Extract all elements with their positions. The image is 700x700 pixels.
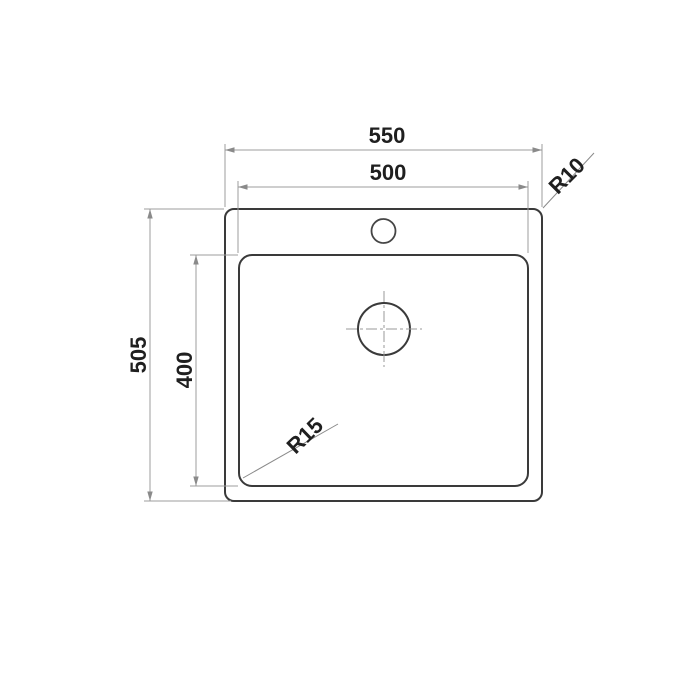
faucet-hole xyxy=(372,219,396,243)
arrowhead-outer-width-right xyxy=(533,147,543,152)
technical-drawing-canvas: 550 500 505 400 R10 R15 xyxy=(0,0,700,700)
dimension-label-outer-width: 550 xyxy=(369,123,406,148)
sink-dimension-drawing: 550 500 505 400 R10 R15 xyxy=(0,0,700,700)
arrowhead-inner-height-bottom xyxy=(193,477,198,487)
arrowhead-inner-width-left xyxy=(238,184,248,189)
arrowhead-outer-height-bottom xyxy=(147,492,152,502)
arrowhead-inner-width-right xyxy=(519,184,529,189)
radius-label-outer-corner: R10 xyxy=(544,153,590,199)
dimension-label-inner-width: 500 xyxy=(370,160,407,185)
dimension-label-inner-height: 400 xyxy=(172,352,197,389)
arrowhead-outer-width-left xyxy=(225,147,235,152)
dimension-label-outer-height: 505 xyxy=(126,337,151,374)
arrowhead-outer-height-top xyxy=(147,209,152,219)
sink-basin-outline xyxy=(239,255,528,486)
arrowhead-inner-height-top xyxy=(193,255,198,265)
